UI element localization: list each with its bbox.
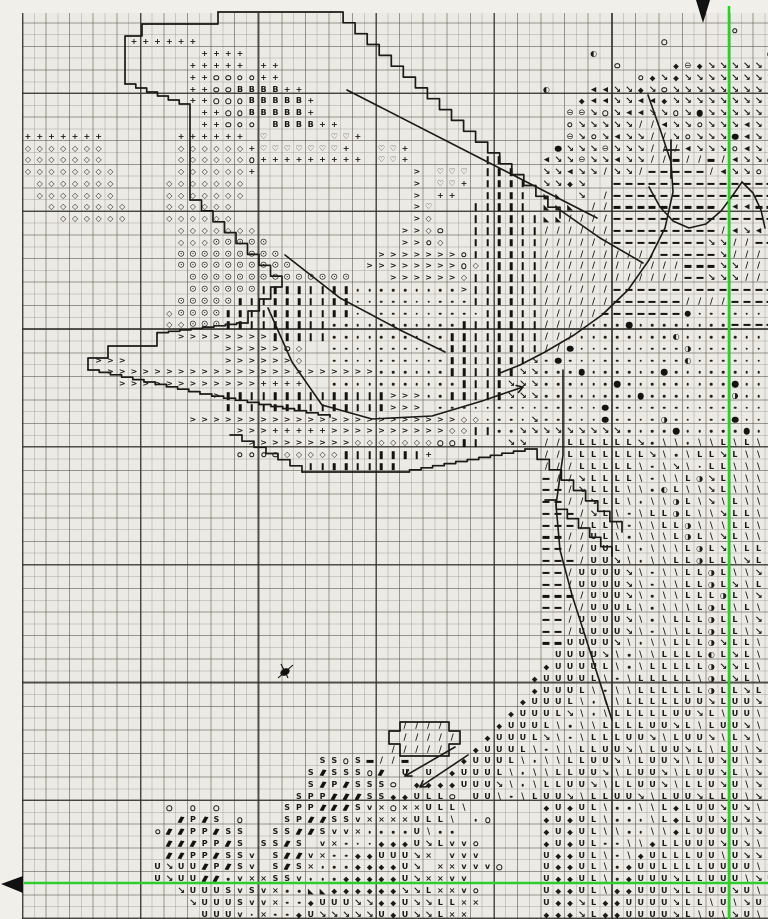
stepped-outline [200,394,330,417]
left-center-arrow-marker [1,876,23,893]
stepped-outline [545,500,612,556]
backstitch-curve [560,210,643,263]
backstitch-curve [268,308,523,419]
backstitch-curve [556,370,612,720]
stepped-outline [331,12,560,218]
backstitch-curve [742,182,765,228]
stepped-outline [248,287,282,323]
outline-segment [88,334,157,370]
backstitch-curve [405,747,455,776]
stepped-outline [230,435,302,472]
backstitch-overlay [0,0,768,919]
outline-segment [125,12,218,84]
backstitch-curve [285,255,445,352]
ink-blot [278,664,293,678]
top-center-arrow-marker [696,0,710,23]
stepped-outline [88,370,200,394]
cross-stitch-chart-page: ++++++++++◐+++++++◆⊖◆↘↘↘↘↘↘++++◆↘◆↘↘↘↘↘↘… [0,0,768,919]
backstitch-curve [420,755,468,787]
stepped-outline [190,200,282,287]
stepped-outline [398,449,525,472]
backstitch-curve [500,95,673,373]
backstitch-curve [347,90,597,218]
stepped-outline [157,323,248,334]
stepped-outline [125,84,190,108]
